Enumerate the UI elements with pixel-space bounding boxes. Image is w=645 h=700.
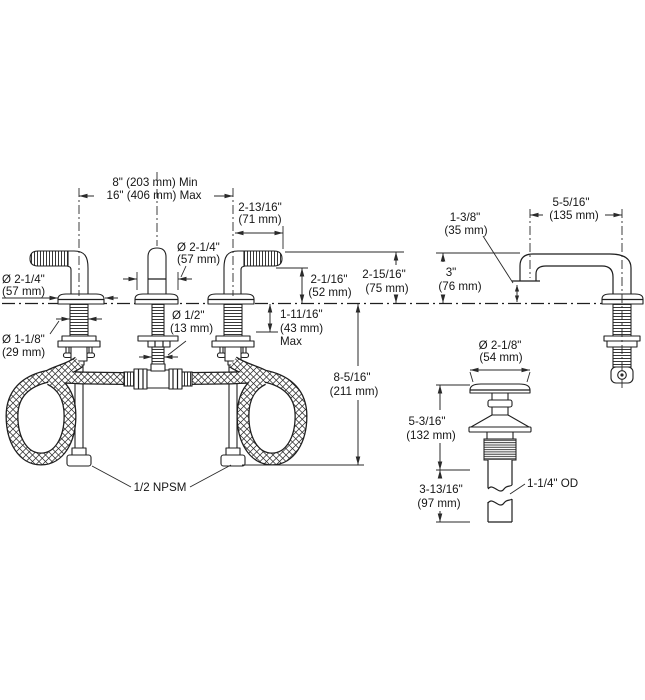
right-handle-shank-assembly [212,304,254,365]
dimension-annotations [2,194,622,522]
spout-inner-profile [536,266,613,294]
dim-drain-upper-in: 5-3/16" [409,415,446,428]
drain-flange [470,384,530,393]
dim-handle-low-mm: (52 mm) [308,286,351,299]
spout-side-view [512,254,643,383]
dimension-lines [2,196,622,522]
dim-handle-shank-dia-in: Ø 1-1/8" [2,333,45,346]
dim-outlet-offset-in: 1-3/8" [450,211,481,224]
dim-handle-low-in: 2-1/16" [311,273,348,286]
dim-spread-max: 16" (406 mm) Max [107,189,202,202]
dim-spread-min: 8" (203 mm) Min [112,176,197,189]
label-supply-connection: 1/2 NPSM [134,481,187,494]
dim-drain-upper-mm: (132 mm) [406,429,456,442]
dim-handle-reach-mm: (71 mm) [238,213,281,226]
escutcheon-flanges [58,294,254,304]
dim-handle-shank-dia-mm: (29 mm) [2,346,45,359]
dim-deck-thickness-mm: (43 mm) [280,322,323,335]
left-hose-nut [67,448,91,466]
dim-handle-high-in: 2-15/16" [362,268,405,281]
dim-spout-shank-dia-in: Ø 1/2" [172,309,204,322]
right-hose-nut [221,448,245,466]
left-handle-shank-assembly [58,304,100,365]
spout-deck-flange [602,294,643,304]
drain-tailpiece [488,460,512,522]
drain-assembly-view [469,384,531,522]
dim-outlet-offset-mm: (35 mm) [444,224,487,237]
dim-drain-lower-in: 3-13/16" [419,483,462,496]
dim-hose-length-mm: (211 mm) [330,385,379,398]
spout-outer-profile [520,254,631,294]
dim-spout-base-dia-mm: (57 mm) [177,253,220,266]
faucet-dimension-drawing: 8" (203 mm) Min 16" (406 mm) Max 2-13/16… [0,0,645,700]
dim-drain-od: 1-1/4" OD [527,477,578,490]
dim-spout-shank-dia-mm: (13 mm) [170,322,213,335]
dim-deck-thickness-max: Max [280,335,302,348]
dim-spout-height-in: 3" [446,266,457,279]
dim-drain-lower-mm: (97 mm) [417,497,460,510]
dim-handle-high-mm: (75 mm) [365,282,408,295]
dim-spout-reach-mm: (135 mm) [549,209,599,222]
drain-body [469,393,531,460]
dim-deck-thickness-in: 1-11/16" [280,308,323,321]
right-braided-hose [188,362,301,459]
dim-handle-base-dia-mm: (57 mm) [2,285,45,298]
spec-drawing-page: 8" (203 mm) Min 16" (406 mm) Max 2-13/16… [0,0,645,700]
left-braided-hose [12,362,124,459]
dim-spout-reach-in: 5-5/16" [553,196,590,209]
tee-fitting [124,364,192,389]
dimension-arrowheads [50,194,623,522]
dim-spout-height-mm: (76 mm) [438,280,481,293]
dim-hose-length-in: 8-5/16" [334,371,371,384]
dim-drain-flange-dia-mm: (54 mm) [479,351,522,364]
